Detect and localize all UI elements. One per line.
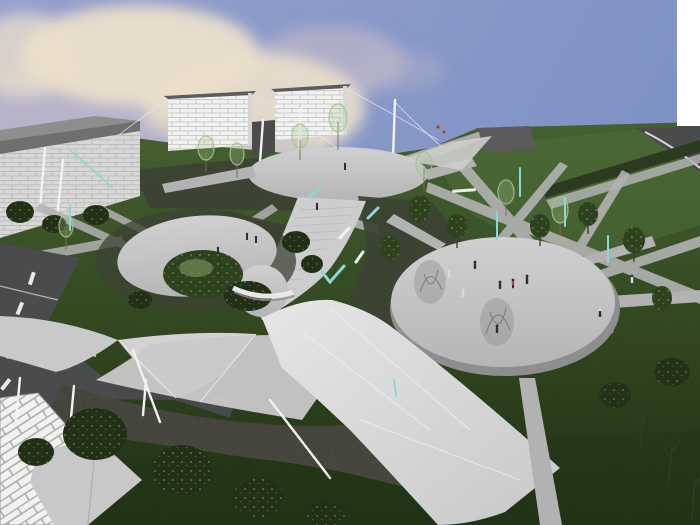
cable-marker-red (436, 125, 439, 128)
architectural-render (0, 0, 700, 525)
sketch-tree (480, 298, 514, 346)
render-canvas (0, 0, 700, 525)
white-margin (677, 0, 700, 126)
cable-marker-red (443, 131, 446, 134)
sketch-tree (414, 260, 446, 304)
